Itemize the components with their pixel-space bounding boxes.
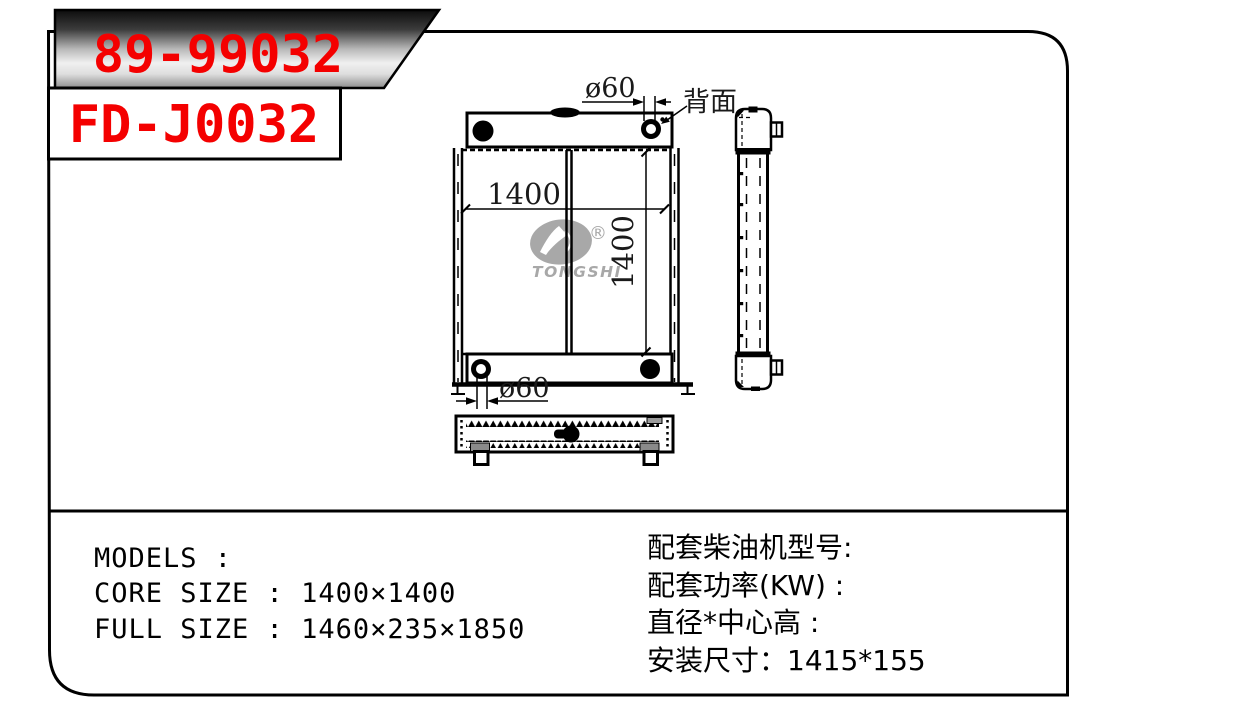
datasheet-drawing: ® TONGSHI bbox=[0, 0, 1240, 716]
top-pipe-diameter-label: ø60 bbox=[585, 73, 636, 104]
side-bottom-tank bbox=[736, 356, 771, 389]
specs-left-column: MODELS : CORE SIZE : 1400×1400 FULL SIZE… bbox=[94, 543, 525, 645]
logo-registered-mark: ® bbox=[589, 223, 607, 244]
bottom-view-corner-tab bbox=[647, 418, 662, 424]
spec-core-size: CORE SIZE : 1400×1400 bbox=[94, 578, 456, 609]
filler-cap bbox=[473, 121, 494, 142]
left-side-plate bbox=[454, 148, 462, 384]
bottom-view bbox=[456, 416, 673, 465]
side-top-tank bbox=[736, 109, 771, 150]
mounting-foot-left bbox=[471, 443, 490, 465]
part-number-primary: 89-99032 bbox=[93, 25, 343, 85]
core-height-dimension: 1400 bbox=[606, 215, 640, 289]
side-view bbox=[736, 107, 783, 392]
core-width-dimension: 1400 bbox=[487, 177, 561, 211]
part-number-secondary: FD-J0032 bbox=[69, 95, 319, 155]
spec-mounting-size: 安装尺寸：1415*155 bbox=[647, 644, 926, 677]
right-side-plate bbox=[671, 148, 679, 384]
logo-oval bbox=[528, 216, 594, 267]
bottom-pipe-diameter-label: ø60 bbox=[499, 373, 550, 404]
spec-power-kw: 配套功率(KW) : bbox=[647, 569, 844, 602]
bottom-cap bbox=[640, 359, 660, 379]
spec-models: MODELS : bbox=[94, 543, 232, 574]
spec-full-size: FULL SIZE : 1460×235×1850 bbox=[94, 614, 525, 645]
part-number-banner: 89-99032 bbox=[55, 10, 439, 88]
mounting-foot-right bbox=[640, 443, 659, 465]
spec-diameter-center-height: 直径*中心高 : bbox=[647, 606, 819, 639]
top-nozzle bbox=[550, 108, 580, 118]
datasheet-page: ® TONGSHI bbox=[0, 0, 1240, 716]
specs-right-column: 配套柴油机型号: 配套功率(KW) : 直径*中心高 : 安装尺寸：1415*1… bbox=[647, 531, 926, 677]
back-view-label: 背面 bbox=[683, 87, 737, 118]
spec-engine-model: 配套柴油机型号: bbox=[647, 531, 852, 564]
secondary-number-box: FD-J0032 bbox=[49, 88, 341, 159]
